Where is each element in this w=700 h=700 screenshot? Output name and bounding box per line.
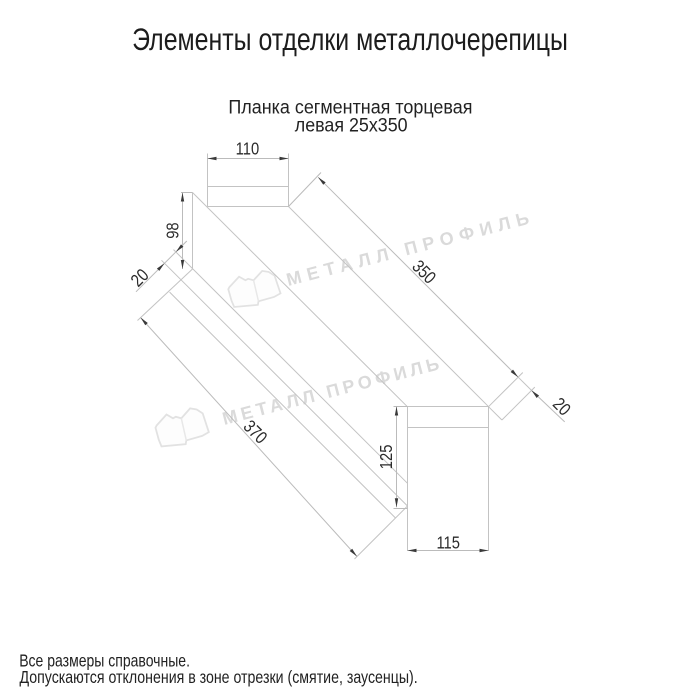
svg-text:115: 115	[436, 533, 460, 553]
svg-text:Допускаются отклонения в зоне: Допускаются отклонения в зоне отрезки (с…	[20, 669, 418, 688]
svg-text:левая 25х350: левая 25х350	[295, 114, 408, 136]
svg-text:110: 110	[236, 139, 260, 159]
svg-text:98: 98	[163, 222, 183, 238]
svg-text:125: 125	[377, 445, 397, 470]
svg-text:Элементы отделки металлочерепи: Элементы отделки металлочерепицы	[132, 22, 568, 57]
